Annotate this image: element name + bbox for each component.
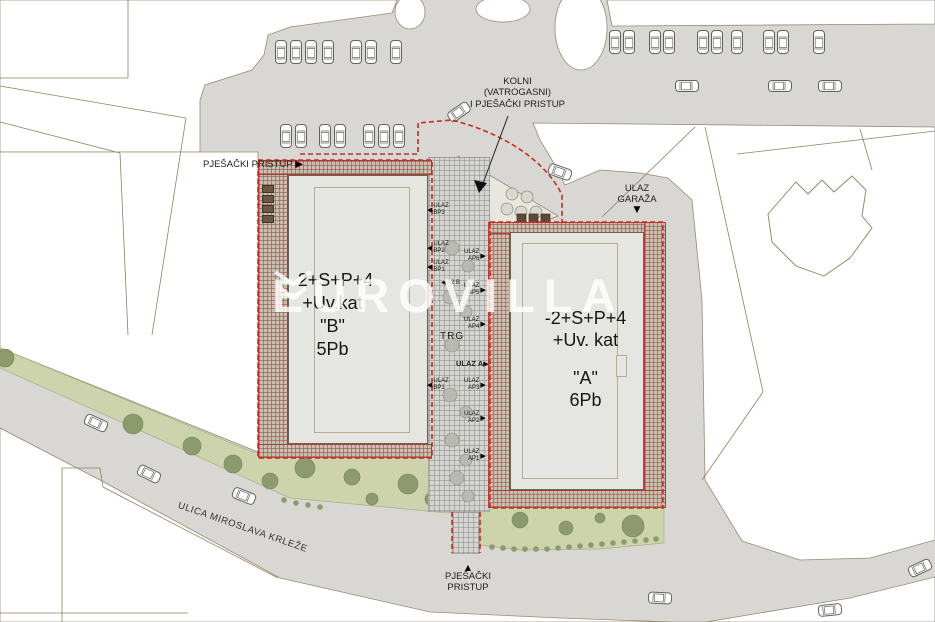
car-icon [364, 125, 375, 148]
entrance-label-ap1: ULAZAP1 ▶ [464, 449, 486, 463]
car-icon [610, 31, 621, 54]
car-icon [769, 81, 792, 92]
entrance-label-ap6: ULAZAP6 ▶ [464, 249, 486, 263]
island-1 [395, 0, 425, 29]
car-icon [391, 41, 402, 64]
building-a-wall-bottom [488, 490, 666, 508]
car-icon [676, 81, 699, 92]
car-icon [664, 31, 675, 54]
car-icon [648, 592, 672, 604]
car-icon [818, 603, 842, 616]
car-icon [83, 413, 108, 432]
arrow-left-icon: ◀ [427, 382, 432, 389]
spacer [518, 351, 653, 367]
parcel-top-right [607, 0, 935, 26]
plaza-corridor [452, 512, 480, 554]
entrance-label-bp2: ◀ ULAZBP2 [427, 241, 449, 255]
car-icon [764, 31, 775, 54]
building-a-attic: +Uv. kat [518, 329, 653, 351]
car-icon [907, 558, 932, 578]
car-icon [650, 31, 661, 54]
arrow-right-icon: ▶ [480, 415, 485, 422]
car-icon [712, 31, 723, 54]
parcel-left [0, 152, 258, 452]
island-3 [555, 0, 607, 70]
vent-block [262, 205, 274, 213]
car-icon [698, 31, 709, 54]
car-icon [778, 31, 789, 54]
car-icon [306, 41, 317, 64]
car-icon [351, 41, 362, 64]
green-right [480, 507, 664, 550]
building-a-name: "A" [518, 367, 653, 389]
vent-block [262, 195, 274, 203]
pedestrian-access-bottom-label: ▲ PJEŠAČKI PRISTUP [436, 564, 500, 594]
arrow-right-icon: ▶ [480, 453, 485, 460]
car-icon [379, 125, 390, 148]
car-icon [320, 125, 331, 148]
island-2 [476, 0, 530, 22]
car-icon [296, 125, 307, 148]
arrow-right-icon: ▶ [295, 159, 303, 170]
car-icon [136, 464, 161, 484]
access-road-line3: I PJEŠAČKI PRISTUP [455, 99, 580, 110]
car-icon [819, 81, 842, 92]
arrow-right-icon: ▶ [480, 382, 485, 389]
vent-block [262, 215, 274, 223]
arrow-left-icon: ◀ [427, 245, 432, 252]
watermark-logo-icon [272, 268, 314, 304]
car-icon [291, 41, 302, 64]
access-road-label: KOLNI (VATROGASNI) I PJEŠAČKI PRISTUP [455, 76, 580, 110]
street-name-label: ULICA MIROSLAVA KRLEŽE [176, 500, 309, 555]
building-b-units: 5Pb [265, 338, 400, 361]
access-road-line2: (VATROGASNI) [455, 87, 580, 98]
pedestrian-access-left-label: PJEŠAČKI PRISTUP ▶ [203, 159, 303, 171]
building-b-wall-bottom [258, 444, 432, 458]
car-icon [732, 31, 743, 54]
arrow-right-icon: ▶ [483, 360, 488, 368]
car-icon [281, 125, 292, 148]
vent-block [262, 185, 274, 193]
parcel-top-left [0, 0, 397, 152]
square-label: TRG [440, 331, 464, 343]
building-a-wall-left [488, 222, 510, 508]
neighbour-building [768, 176, 872, 276]
car-icon [231, 487, 256, 506]
car-icon [276, 41, 287, 64]
watermark: EUROVILLA [272, 268, 625, 323]
entrance-label-bp3: ◀ ULAZBP3 [427, 203, 449, 217]
arrow-down-icon: ▼ [606, 206, 668, 214]
car-icon [624, 31, 635, 54]
car-icon [335, 125, 346, 148]
car-icon [814, 31, 825, 54]
car-icon [366, 41, 377, 64]
arrow-left-icon: ◀ [427, 207, 432, 214]
access-road-line1: KOLNI [455, 76, 580, 87]
car-icon [547, 163, 572, 181]
car-icon [323, 41, 334, 64]
arrow-up-icon: ▲ [436, 564, 500, 571]
entrance-a-main-label: ULAZ A▶ [456, 359, 489, 368]
building-a-units: 6Pb [518, 389, 653, 411]
car-icon [394, 125, 405, 148]
arrow-right-icon: ▶ [480, 253, 485, 260]
entrance-label-bp1-south: ◀ ULAZBP1 [427, 378, 449, 392]
site-plan: KOLNI (VATROGASNI) I PJEŠAČKI PRISTUP PJ… [0, 0, 935, 622]
garage-entrance-label: ULAZ GARAŽA ▼ [606, 183, 668, 214]
watermark-text: EUROVILLA [272, 268, 625, 323]
plaza-trees [501, 188, 542, 218]
entrance-label-ap3: ULAZAP3 ▶ [464, 378, 486, 392]
entrance-label-ap2: ULAZAP2 ▶ [464, 411, 486, 425]
